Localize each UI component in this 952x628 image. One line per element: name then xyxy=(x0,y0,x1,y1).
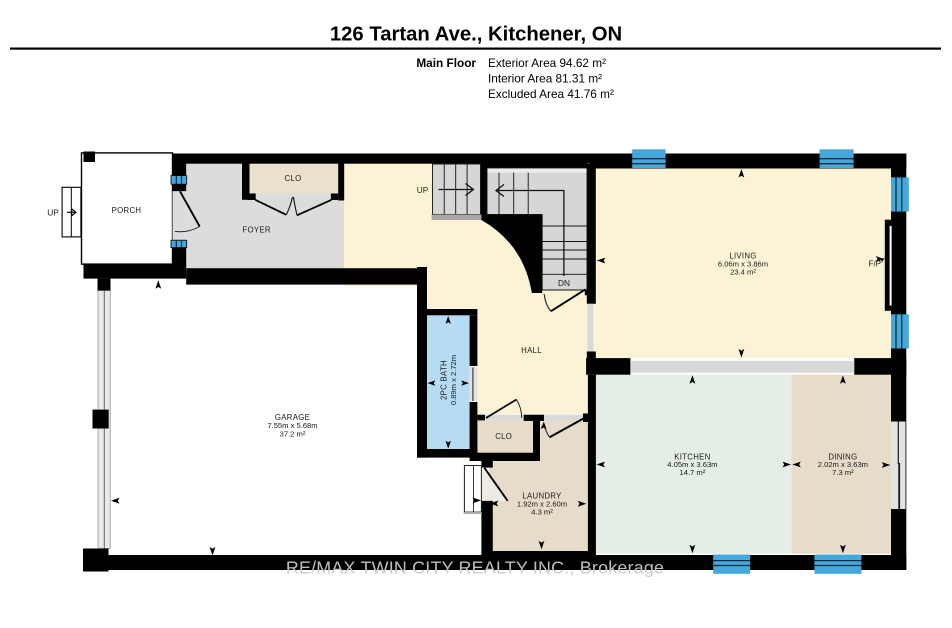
svg-text:Exterior Area 94.62 m²: Exterior Area 94.62 m² xyxy=(488,56,606,70)
svg-text:4.3 m²: 4.3 m² xyxy=(531,507,553,516)
svg-text:PORCH: PORCH xyxy=(112,206,142,215)
svg-text:CLO: CLO xyxy=(495,432,512,441)
svg-text:Interior Area 81.31 m²: Interior Area 81.31 m² xyxy=(488,72,602,86)
svg-text:0.89m x 2.72m: 0.89m x 2.72m xyxy=(449,355,458,405)
svg-text:Main Floor: Main Floor xyxy=(416,56,476,70)
svg-text:F/P: F/P xyxy=(869,260,881,269)
svg-text:Excluded Area 41.76 m²: Excluded Area 41.76 m² xyxy=(488,87,614,101)
svg-text:23.4 m²: 23.4 m² xyxy=(730,268,756,277)
svg-text:DN: DN xyxy=(558,278,570,288)
svg-text:RE/MAX TWIN CITY REALTY INC.,: RE/MAX TWIN CITY REALTY INC., Brokerage xyxy=(286,558,664,578)
svg-text:37.2 m²: 37.2 m² xyxy=(280,429,306,438)
svg-text:7.3 m²: 7.3 m² xyxy=(832,468,854,477)
svg-text:14.7 m²: 14.7 m² xyxy=(680,468,706,477)
svg-text:HALL: HALL xyxy=(521,346,542,355)
svg-text:UP: UP xyxy=(417,185,429,195)
svg-text:2PC BATH: 2PC BATH xyxy=(440,360,449,400)
svg-text:FOYER: FOYER xyxy=(242,225,270,234)
svg-text:UP: UP xyxy=(47,208,59,218)
svg-text:126 Tartan Ave., Kitchener, ON: 126 Tartan Ave., Kitchener, ON xyxy=(330,24,622,46)
svg-text:CLO: CLO xyxy=(285,174,302,183)
